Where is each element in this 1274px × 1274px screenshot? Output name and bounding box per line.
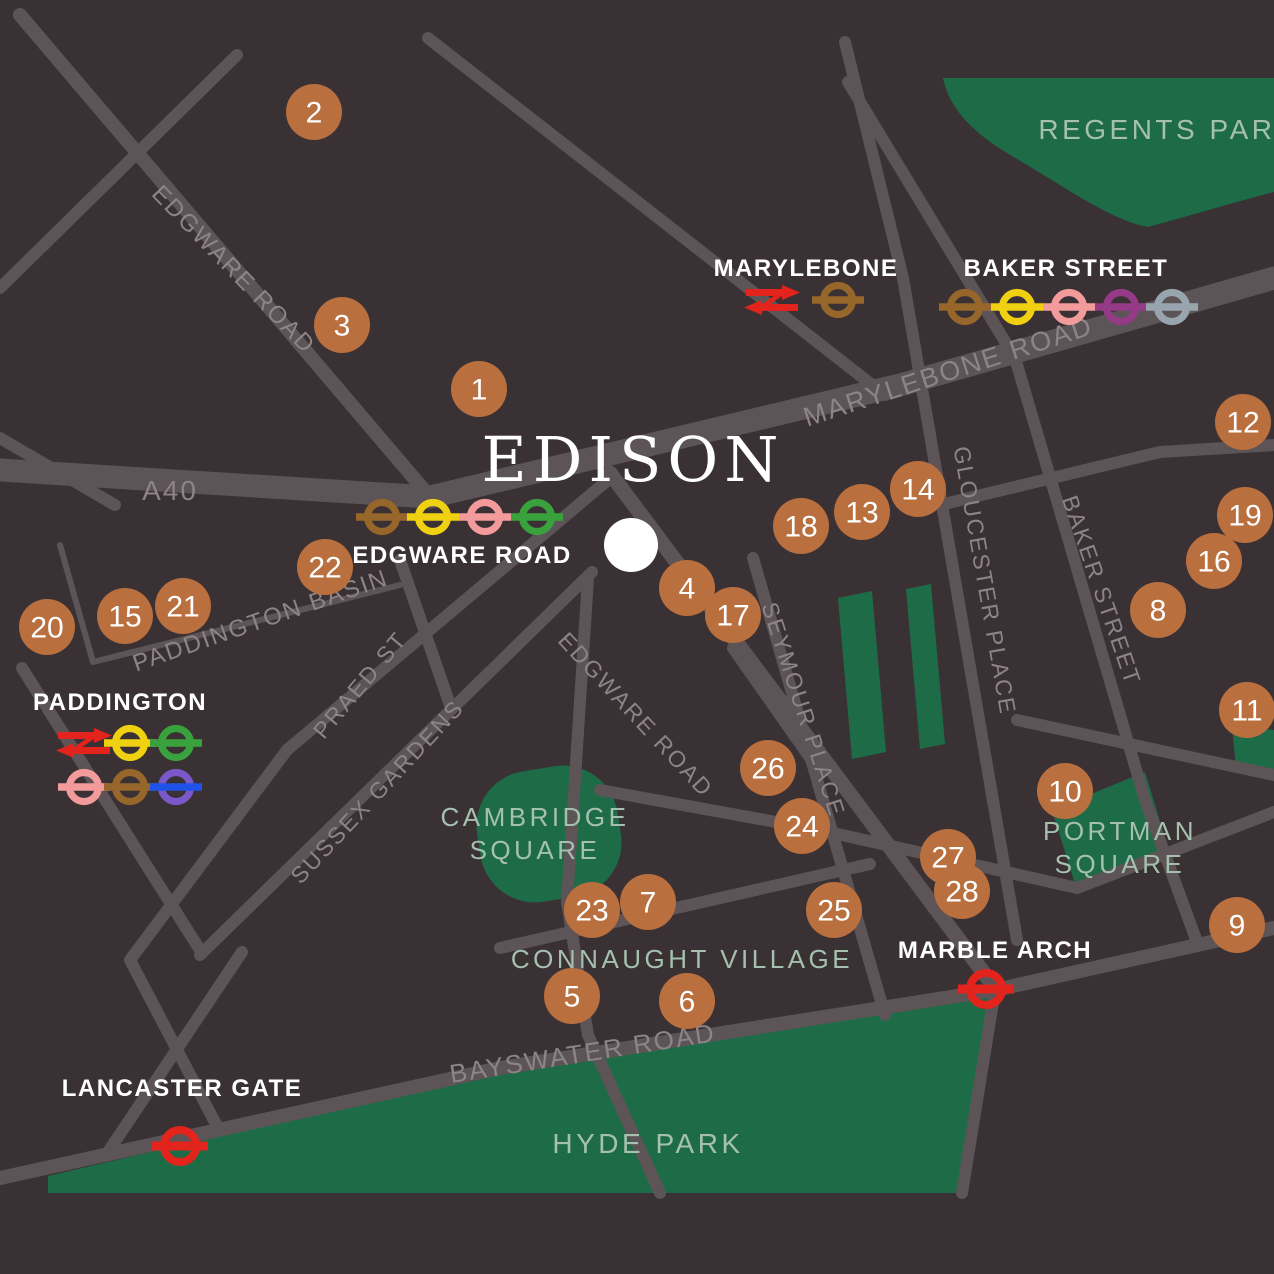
map-marker-7[interactable]: 7 xyxy=(620,874,676,930)
map-marker-21[interactable]: 21 xyxy=(155,578,211,634)
area-label-connaught-village: CONNAUGHT VILLAGE xyxy=(511,944,853,974)
map-marker-14[interactable]: 14 xyxy=(890,461,946,517)
marker-number: 22 xyxy=(308,552,341,585)
edison-title: EDISON xyxy=(481,423,784,496)
marker-number: 15 xyxy=(108,601,141,634)
marker-number: 14 xyxy=(901,474,934,507)
map-marker-17[interactable]: 17 xyxy=(705,587,761,643)
map-marker-5[interactable]: 5 xyxy=(544,968,600,1024)
map-marker-28[interactable]: 28 xyxy=(934,863,990,919)
map-marker-8[interactable]: 8 xyxy=(1130,582,1186,638)
marker-number: 1 xyxy=(471,374,488,407)
marker-number: 16 xyxy=(1197,546,1230,579)
map-marker-6[interactable]: 6 xyxy=(659,973,715,1029)
map-marker-26[interactable]: 26 xyxy=(740,740,796,796)
map-marker-2[interactable]: 2 xyxy=(286,84,342,140)
marker-number: 26 xyxy=(751,753,784,786)
marker-number: 20 xyxy=(30,612,63,645)
station-label-marble-arch: MARBLE ARCH xyxy=(898,937,1092,964)
map-marker-18[interactable]: 18 xyxy=(773,498,829,554)
map-marker-13[interactable]: 13 xyxy=(834,484,890,540)
map-marker-11[interactable]: 11 xyxy=(1219,682,1274,738)
marker-number: 13 xyxy=(845,497,878,530)
edison-site-marker[interactable] xyxy=(604,518,658,572)
map-marker-22[interactable]: 22 xyxy=(297,539,353,595)
station-label-paddington: PADDINGTON xyxy=(33,689,207,716)
marker-number: 4 xyxy=(679,573,696,606)
marker-number: 12 xyxy=(1226,407,1259,440)
marker-number: 5 xyxy=(564,981,581,1014)
marker-number: 19 xyxy=(1228,500,1261,533)
map-marker-16[interactable]: 16 xyxy=(1186,533,1242,589)
map-marker-25[interactable]: 25 xyxy=(806,882,862,938)
marker-number: 6 xyxy=(679,986,696,1019)
map-canvas: EDGWARE ROADA40MARYLEBONE ROADPADDINGTON… xyxy=(0,0,1274,1274)
marker-number: 2 xyxy=(306,97,323,130)
station-label-edgware-road: EDGWARE ROAD xyxy=(352,542,571,569)
station-label-marylebone: MARYLEBONE xyxy=(714,255,899,282)
map-marker-12[interactable]: 12 xyxy=(1215,394,1271,450)
station-label-baker-street: BAKER STREET xyxy=(964,255,1169,282)
map-marker-9[interactable]: 9 xyxy=(1209,897,1265,953)
map-marker-3[interactable]: 3 xyxy=(314,297,370,353)
map-marker-23[interactable]: 23 xyxy=(564,882,620,938)
marker-number: 25 xyxy=(817,895,850,928)
map-marker-15[interactable]: 15 xyxy=(97,588,153,644)
marker-number: 11 xyxy=(1231,695,1262,728)
marker-number: 28 xyxy=(945,876,978,909)
marker-number: 23 xyxy=(575,895,608,928)
marker-number: 17 xyxy=(716,600,749,633)
map-marker-24[interactable]: 24 xyxy=(774,798,830,854)
marker-number: 24 xyxy=(785,811,818,844)
area-label-hyde-park: HYDE PARK xyxy=(552,1128,743,1159)
marker-number: 18 xyxy=(784,511,817,544)
marker-number: 9 xyxy=(1229,910,1246,943)
map-marker-20[interactable]: 20 xyxy=(19,599,75,655)
area-label-regents-park: REGENTS PARK xyxy=(1038,114,1274,145)
marker-number: 7 xyxy=(640,887,657,920)
map-marker-19[interactable]: 19 xyxy=(1217,487,1273,543)
road-label: A40 xyxy=(142,475,198,506)
edison-location-map: EDGWARE ROADA40MARYLEBONE ROADPADDINGTON… xyxy=(0,0,1274,1274)
marker-number: 21 xyxy=(166,591,199,624)
marker-number: 8 xyxy=(1150,595,1167,628)
map-marker-1[interactable]: 1 xyxy=(451,361,507,417)
marker-number: 10 xyxy=(1048,776,1081,809)
station-label-lancaster-gate: LANCASTER GATE xyxy=(62,1075,303,1102)
map-marker-10[interactable]: 10 xyxy=(1037,763,1093,819)
marker-number: 3 xyxy=(334,310,351,343)
